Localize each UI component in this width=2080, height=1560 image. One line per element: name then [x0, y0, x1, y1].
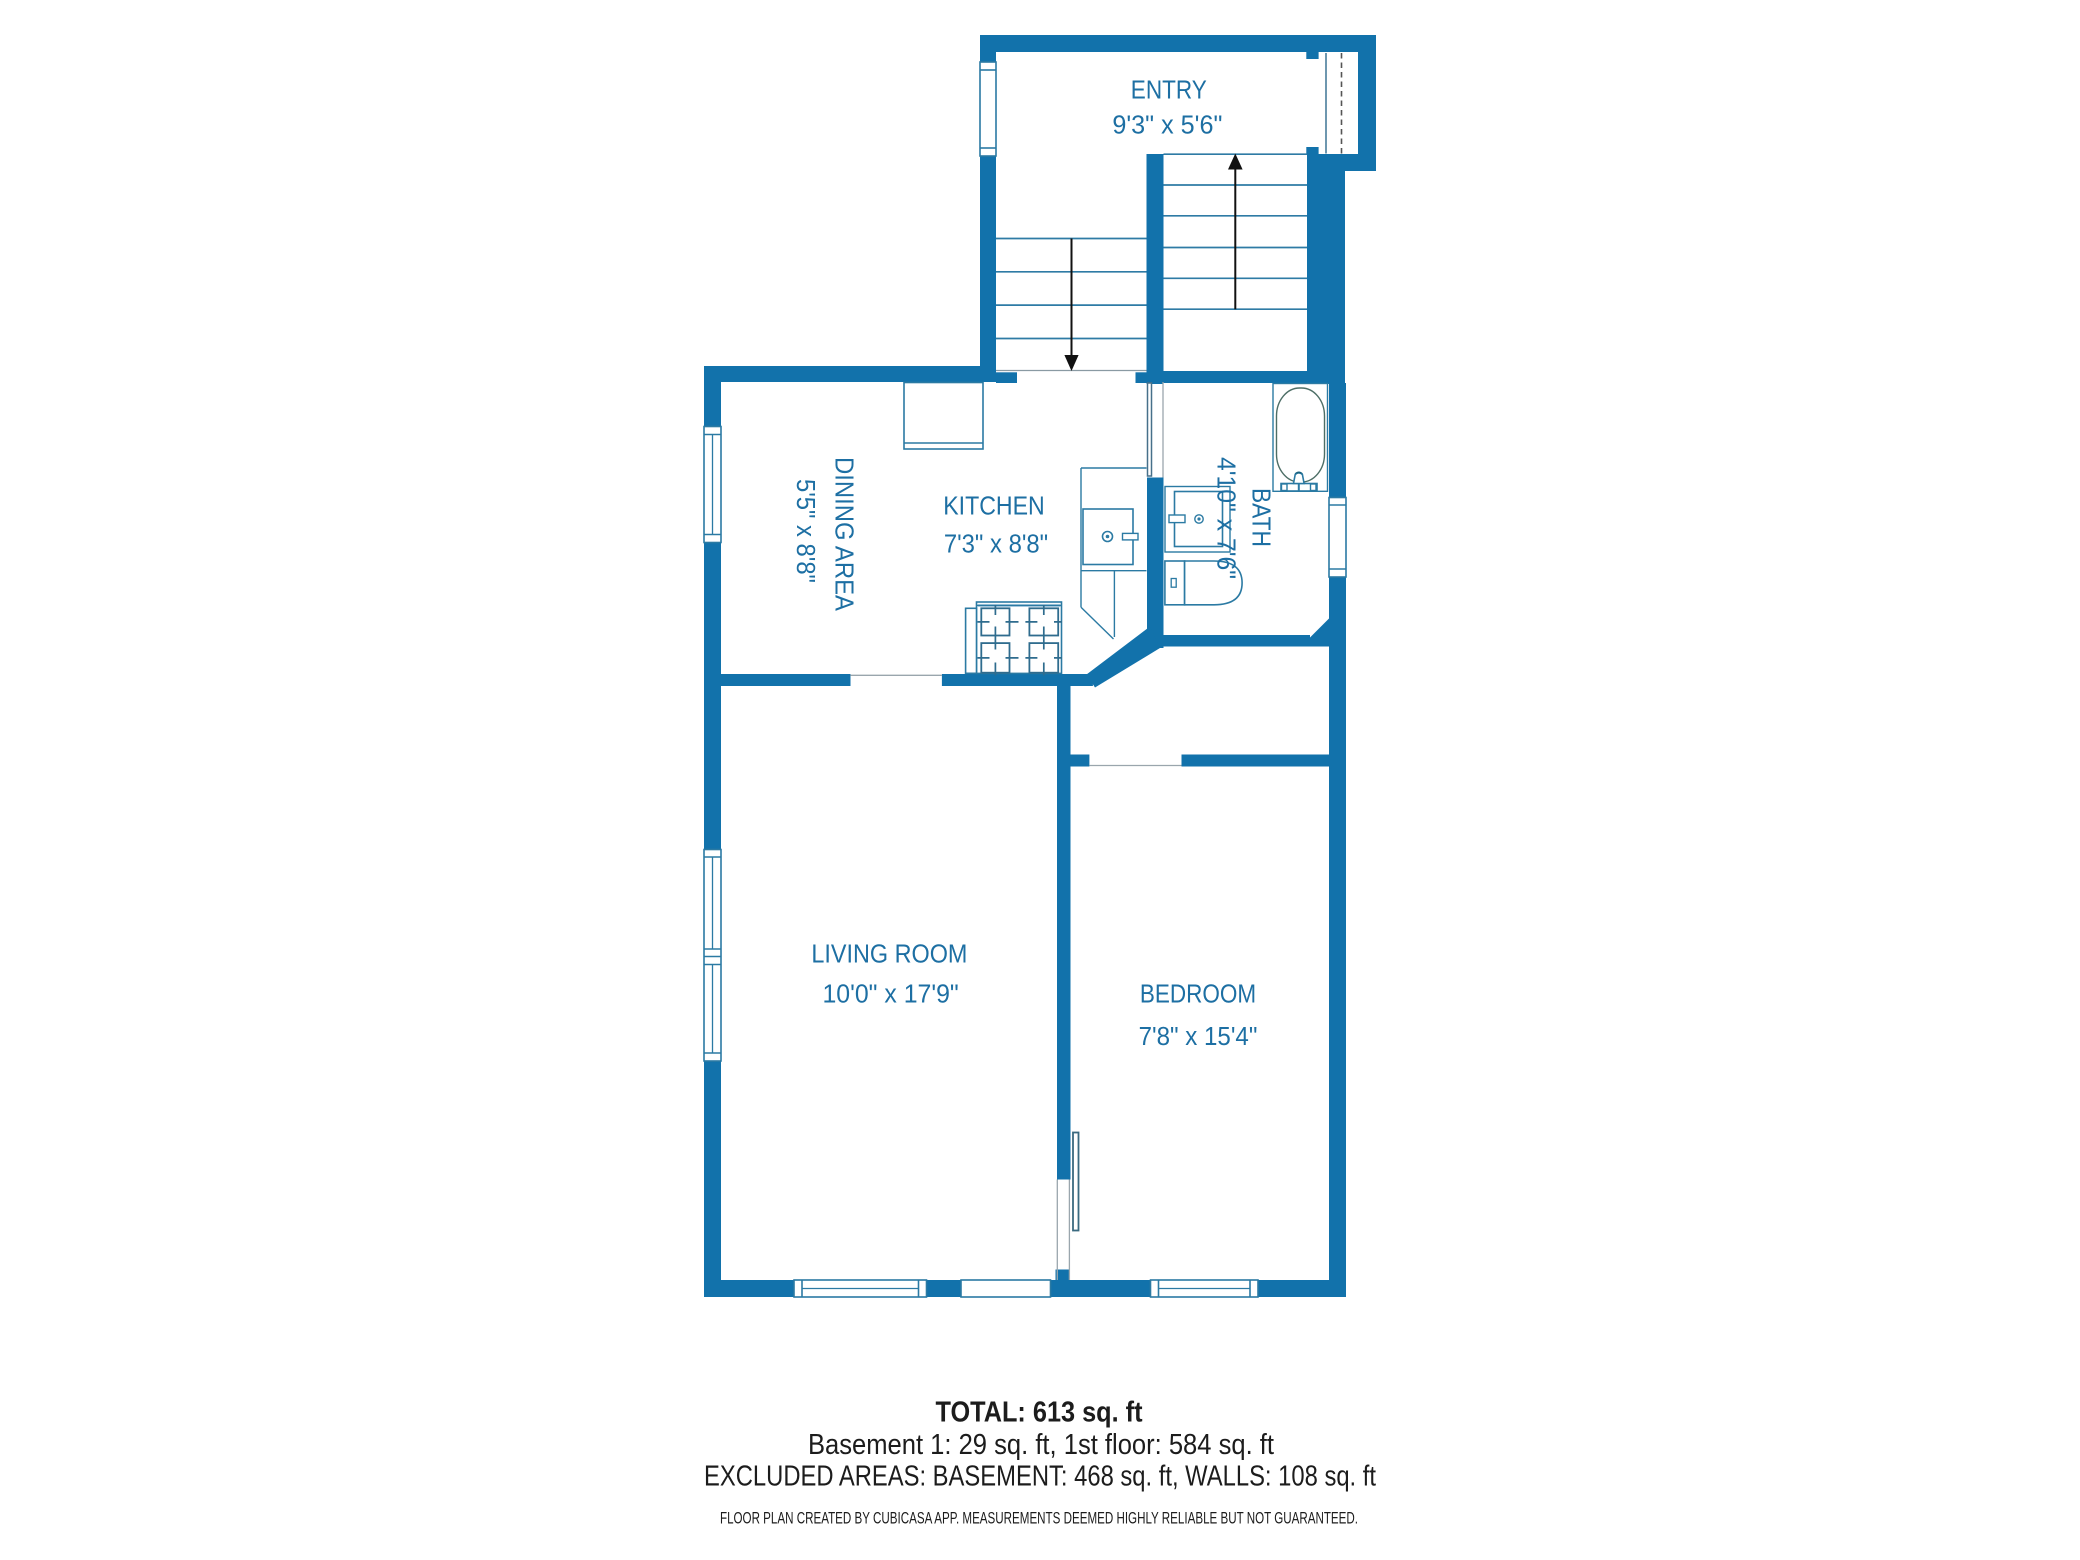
svg-text:BEDROOM: BEDROOM — [1140, 981, 1256, 1009]
svg-text:5'5" x 8'8": 5'5" x 8'8" — [791, 479, 819, 583]
svg-text:7'3" x 8'8": 7'3" x 8'8" — [944, 531, 1048, 559]
svg-text:KITCHEN: KITCHEN — [943, 493, 1045, 521]
svg-text:ENTRY: ENTRY — [1131, 76, 1207, 104]
svg-text:7'8" x 15'4": 7'8" x 15'4" — [1139, 1023, 1258, 1051]
svg-text:4'10" x 7'6": 4'10" x 7'6" — [1212, 457, 1240, 579]
svg-text:BATH: BATH — [1247, 488, 1275, 547]
svg-text:FLOOR PLAN CREATED BY CUBICASA: FLOOR PLAN CREATED BY CUBICASA APP. MEAS… — [720, 1510, 1358, 1528]
svg-text:9'3" x 5'6": 9'3" x 5'6" — [1112, 111, 1222, 139]
svg-text:10'0" x 17'9": 10'0" x 17'9" — [822, 981, 958, 1009]
svg-text:Basement 1: 29 sq. ft, 1st flo: Basement 1: 29 sq. ft, 1st floor: 584 sq… — [808, 1429, 1274, 1461]
svg-text:EXCLUDED AREAS: BASEMENT: 468: EXCLUDED AREAS: BASEMENT: 468 sq. ft, WA… — [704, 1460, 1376, 1492]
svg-text:DINING AREA: DINING AREA — [829, 457, 857, 611]
svg-text:LIVING ROOM: LIVING ROOM — [811, 941, 967, 969]
svg-text:TOTAL: 613 sq. ft: TOTAL: 613 sq. ft — [936, 1397, 1143, 1429]
